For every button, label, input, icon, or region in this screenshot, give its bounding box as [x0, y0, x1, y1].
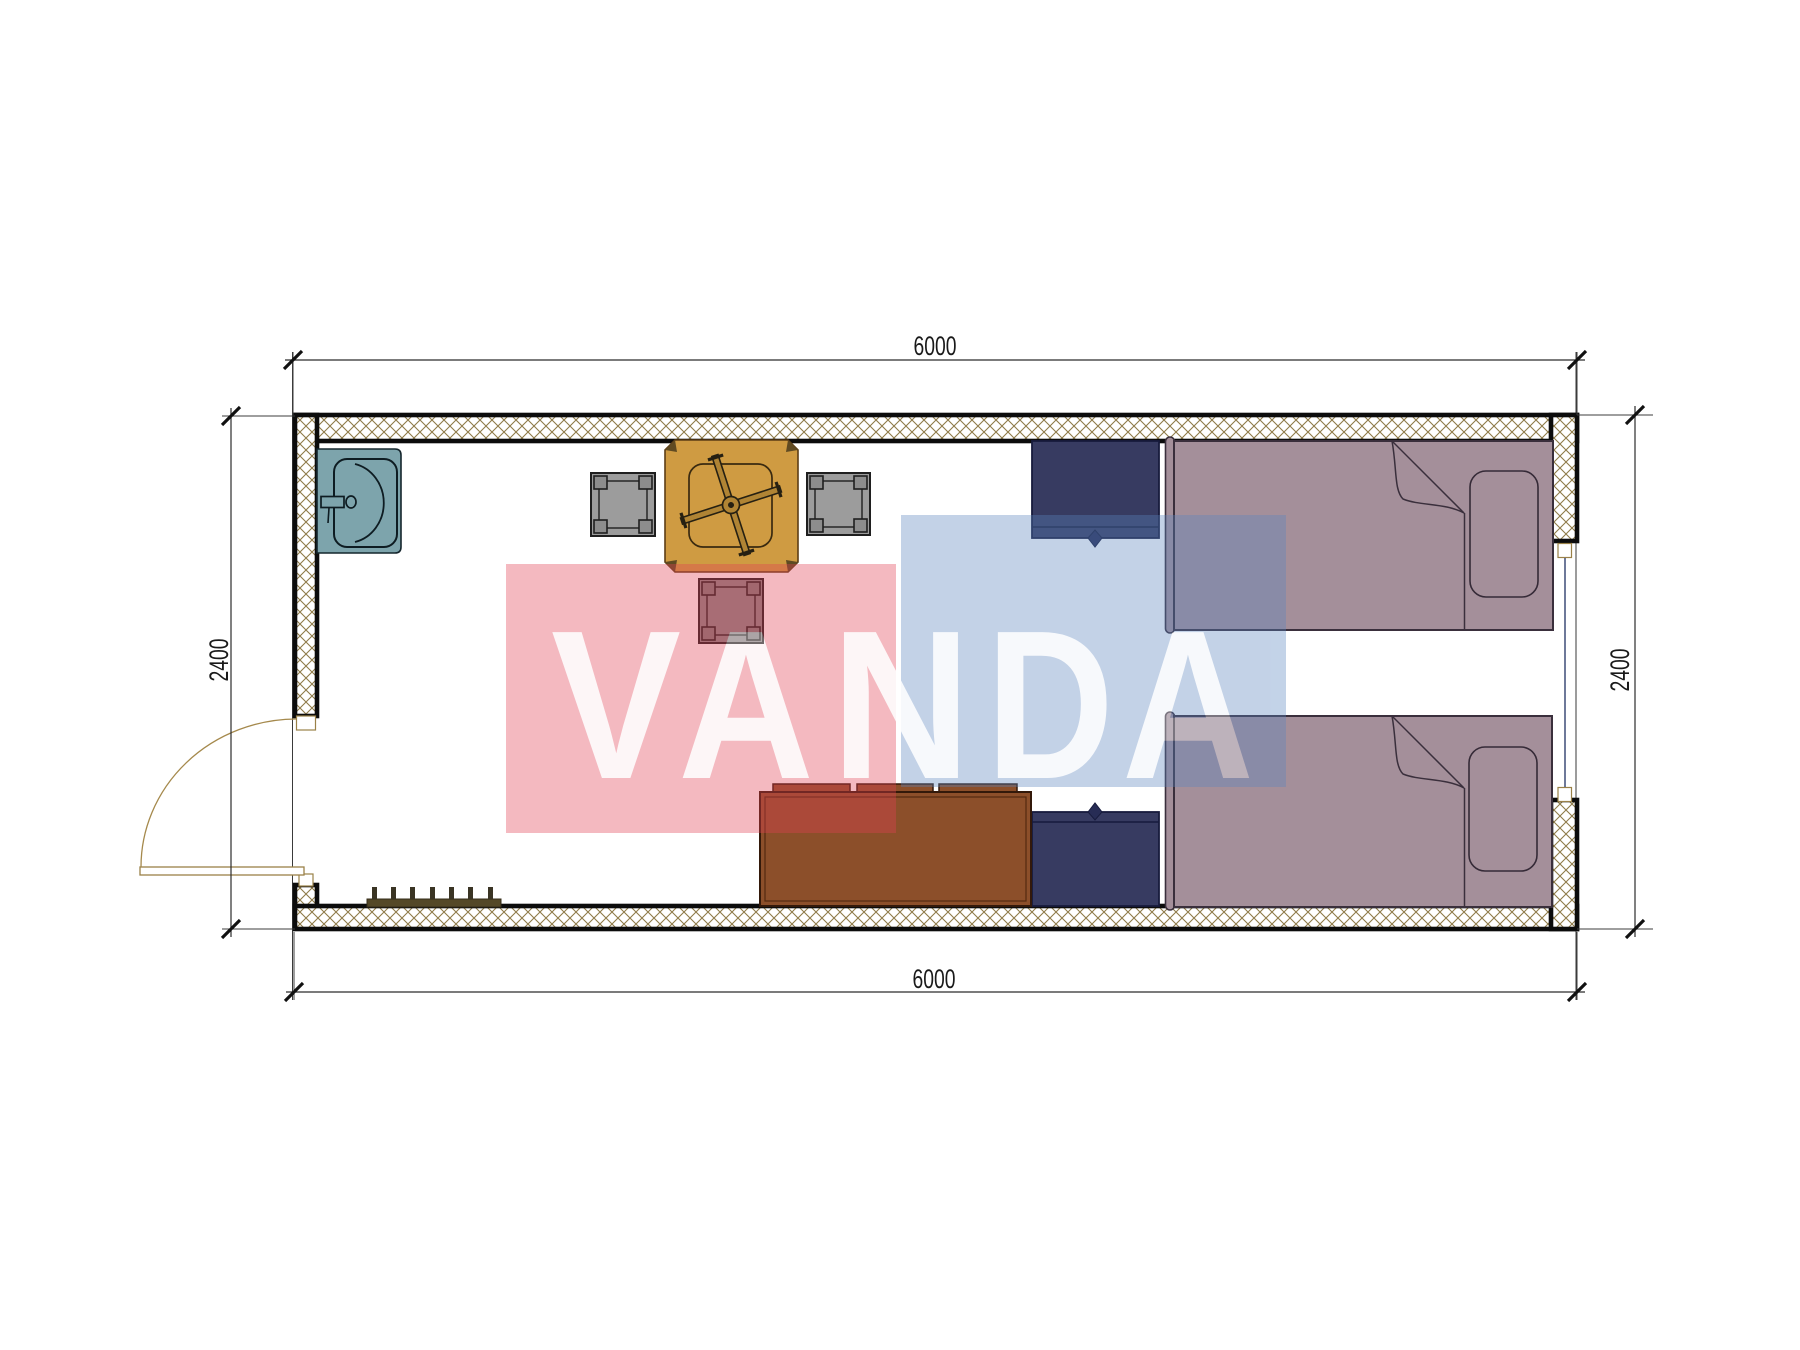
svg-text:6000: 6000	[914, 331, 957, 361]
svg-text:2400: 2400	[1605, 649, 1635, 692]
svg-text:D: D	[986, 586, 1114, 823]
svg-text:N: N	[831, 586, 971, 823]
svg-text:A: A	[678, 586, 814, 823]
svg-text:V: V	[551, 586, 681, 823]
svg-text:2400: 2400	[204, 639, 234, 682]
svg-text:6000: 6000	[913, 964, 956, 994]
svg-text:A: A	[1122, 586, 1254, 823]
